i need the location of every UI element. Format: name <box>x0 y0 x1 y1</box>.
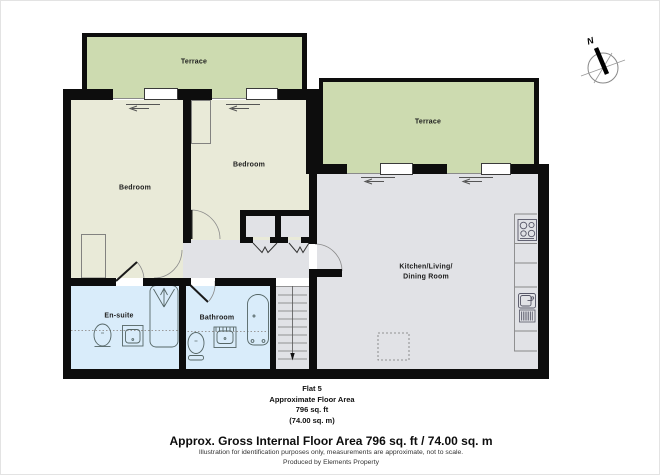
wall-segment <box>215 278 276 286</box>
terrace-door-opening <box>212 89 246 99</box>
approx-floor-area-label: Approximate Floor Area <box>1 395 623 406</box>
area-sqm: (74.00 sq. m) <box>1 416 623 427</box>
wall-segment <box>319 78 539 82</box>
label-bathroom: Bathroom <box>200 315 235 322</box>
wall-segment <box>302 33 307 89</box>
toilet-icon <box>188 333 204 354</box>
wall-segment <box>240 237 253 243</box>
bathroom-fixtures <box>184 295 269 361</box>
wall-segment <box>413 164 447 174</box>
label-terrace-1: Terrace <box>181 59 207 66</box>
wall-segment <box>306 89 319 174</box>
gross-area-headline: Approx. Gross Internal Floor Area 796 sq… <box>1 434 660 448</box>
wall-segment <box>183 100 191 240</box>
flat-name: Flat 5 <box>1 384 623 395</box>
door-leaves <box>116 210 208 302</box>
window <box>481 163 511 175</box>
window <box>144 88 178 100</box>
label-kitchen-line1: Kitchen/Living/ <box>399 263 452 273</box>
wall-segment <box>63 369 549 379</box>
wall-segment <box>63 89 113 100</box>
wall-segment <box>308 164 347 174</box>
toilet-icon <box>94 324 111 346</box>
wall-segment <box>82 33 307 37</box>
bifold-door-icon <box>253 243 309 253</box>
label-ensuite: En-suite <box>104 313 133 320</box>
wall-segment <box>301 237 309 243</box>
wall-segment <box>309 174 317 244</box>
terrace-door-opening <box>447 164 481 174</box>
area-summary: Flat 5 Approximate Floor Area 796 sq. ft… <box>1 384 623 426</box>
wall-segment <box>270 286 276 369</box>
kitchen-door-arc <box>315 244 342 271</box>
area-sqft: 796 sq. ft <box>1 405 623 416</box>
sink-icon <box>519 294 536 309</box>
credit-text: Produced by Elements Property <box>1 459 660 466</box>
bedroom1-door-arc <box>154 250 182 278</box>
compass-icon: N <box>581 35 625 83</box>
wall-segment <box>178 89 212 100</box>
wall-segment <box>183 237 191 243</box>
label-kitchen-living: Kitchen/Living/ Dining Room <box>399 263 452 282</box>
wall-segment <box>143 278 191 286</box>
label-bedroom-1: Bedroom <box>119 185 151 192</box>
window <box>380 163 413 175</box>
wall-segment <box>309 269 342 277</box>
wall-segment <box>534 78 539 164</box>
wall-segment <box>270 237 288 243</box>
bathtub-icon <box>248 295 269 305</box>
wall-segment <box>179 286 186 369</box>
floor-plan: N Terrace Terrace Bedroom Bedroom <box>0 0 660 475</box>
wall-segment <box>82 33 87 89</box>
disclaimer-text: Illustration for identification purposes… <box>1 449 660 456</box>
label-bedroom-2: Bedroom <box>233 162 265 169</box>
dashed-floor-outline <box>378 333 409 360</box>
terrace-door-opening <box>113 89 144 99</box>
bedroom2-door-arc <box>191 210 220 239</box>
wall-segment <box>538 164 549 379</box>
wall-segment <box>319 78 323 164</box>
stairs <box>276 286 309 361</box>
wall-segment <box>63 89 71 379</box>
window <box>246 88 278 100</box>
appliance-icon <box>520 310 536 322</box>
hob-icon <box>518 220 537 241</box>
label-terrace-2: Terrace <box>415 119 441 126</box>
compass-north-label: N <box>586 35 596 47</box>
terrace-door-opening <box>347 164 380 174</box>
ensuite-door-leaf <box>116 262 137 281</box>
label-kitchen-line2: Dining Room <box>399 272 452 282</box>
wall-segment <box>63 278 116 286</box>
wall-segment <box>309 277 317 369</box>
